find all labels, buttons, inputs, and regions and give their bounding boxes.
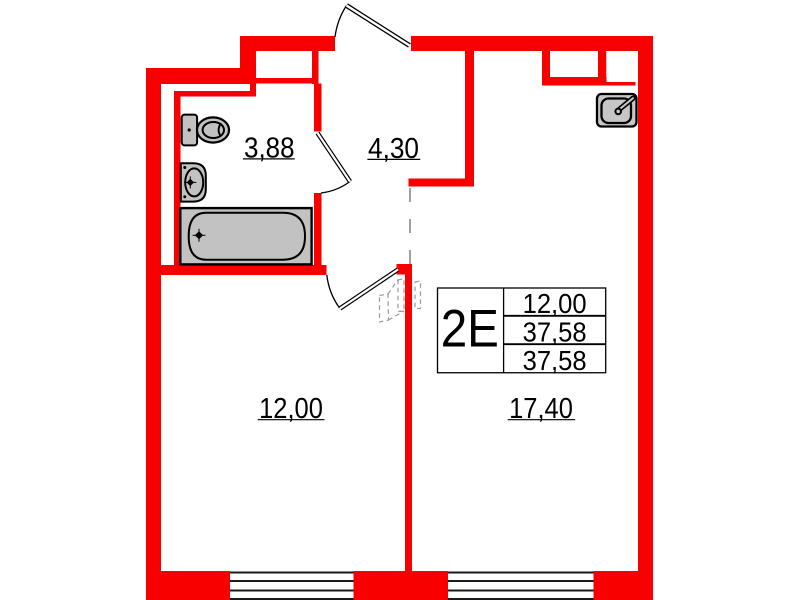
svg-text:4,30: 4,30 <box>368 133 419 165</box>
svg-text:37,58: 37,58 <box>523 345 587 376</box>
svg-text:17,40: 17,40 <box>509 393 573 425</box>
svg-text:2E: 2E <box>441 300 499 359</box>
svg-text:37,58: 37,58 <box>523 317 587 348</box>
svg-text:3,88: 3,88 <box>244 133 295 165</box>
svg-text:12,00: 12,00 <box>259 393 323 425</box>
svg-text:12,00: 12,00 <box>523 288 587 319</box>
